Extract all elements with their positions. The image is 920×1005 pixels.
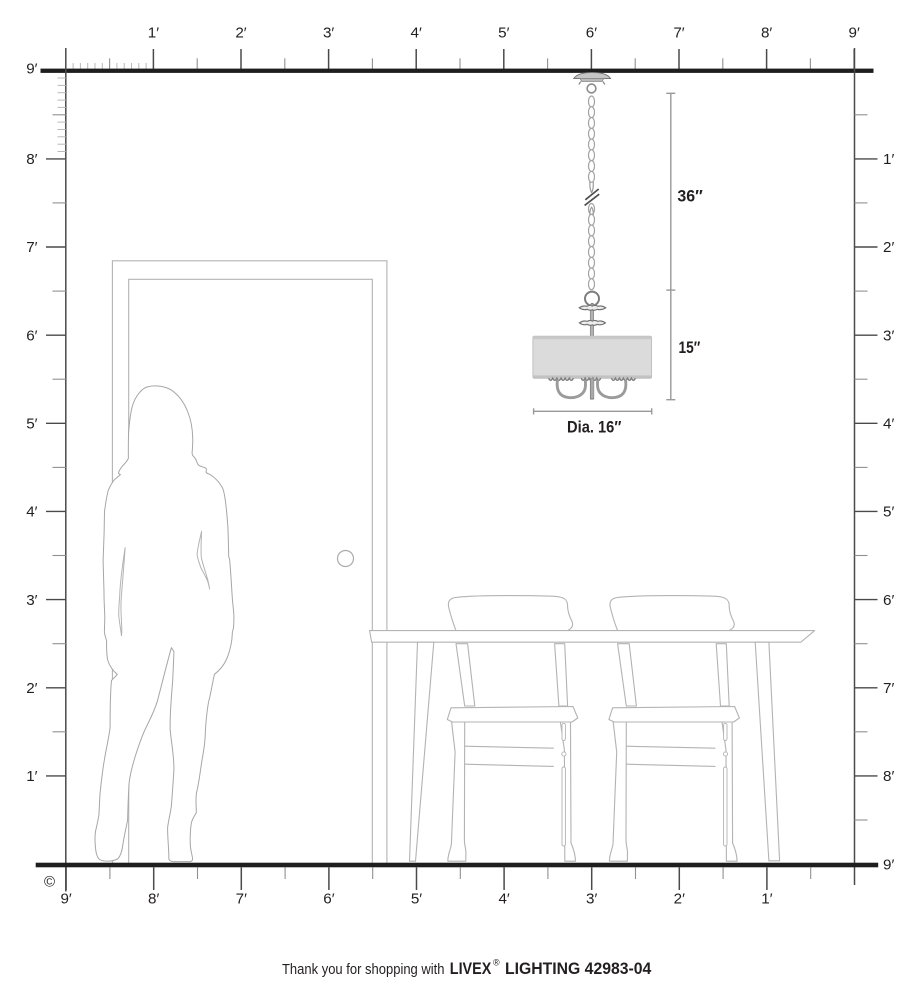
svg-text:6′: 6′ [883,592,894,609]
svg-text:3′: 3′ [586,891,597,908]
svg-text:©: © [44,874,55,891]
svg-text:8′: 8′ [148,891,159,908]
svg-text:2′: 2′ [235,25,246,42]
svg-text:5′: 5′ [498,25,509,42]
svg-text:7′: 7′ [26,239,37,256]
svg-text:®: ® [493,958,500,968]
svg-text:8′: 8′ [883,768,894,785]
svg-text:4′: 4′ [411,25,422,42]
svg-text:5′: 5′ [411,891,422,908]
svg-text:2′: 2′ [26,680,37,697]
svg-text:36″: 36″ [677,186,702,205]
svg-text:8′: 8′ [26,151,37,168]
svg-text:1′: 1′ [26,768,37,785]
svg-text:5′: 5′ [26,416,37,433]
svg-text:2′: 2′ [883,239,894,256]
svg-text:1′: 1′ [883,151,894,168]
svg-text:4′: 4′ [498,891,509,908]
svg-text:LIGHTING 42983-04: LIGHTING 42983-04 [505,960,652,978]
svg-text:6′: 6′ [586,25,597,42]
svg-text:7′: 7′ [883,680,894,697]
svg-text:9′: 9′ [60,891,71,908]
svg-text:3′: 3′ [883,327,894,344]
svg-text:15″: 15″ [679,338,701,357]
svg-text:4′: 4′ [883,416,894,433]
svg-text:LIVEX: LIVEX [450,960,492,978]
svg-text:7′: 7′ [236,891,247,908]
svg-text:3′: 3′ [323,25,334,42]
svg-text:3′: 3′ [26,592,37,609]
svg-text:5′: 5′ [883,504,894,521]
svg-text:9′: 9′ [883,856,894,873]
svg-text:9′: 9′ [849,25,860,42]
svg-text:9′: 9′ [26,61,37,78]
svg-text:Dia. 16″: Dia. 16″ [567,417,621,436]
svg-text:7′: 7′ [673,25,684,42]
svg-text:1′: 1′ [148,25,159,42]
svg-text:Thank you for shopping with: Thank you for shopping with [282,961,445,978]
svg-text:4′: 4′ [26,504,37,521]
svg-text:2′: 2′ [674,891,685,908]
svg-text:6′: 6′ [26,327,37,344]
svg-text:6′: 6′ [323,891,334,908]
svg-text:1′: 1′ [761,891,772,908]
svg-text:8′: 8′ [761,25,772,42]
